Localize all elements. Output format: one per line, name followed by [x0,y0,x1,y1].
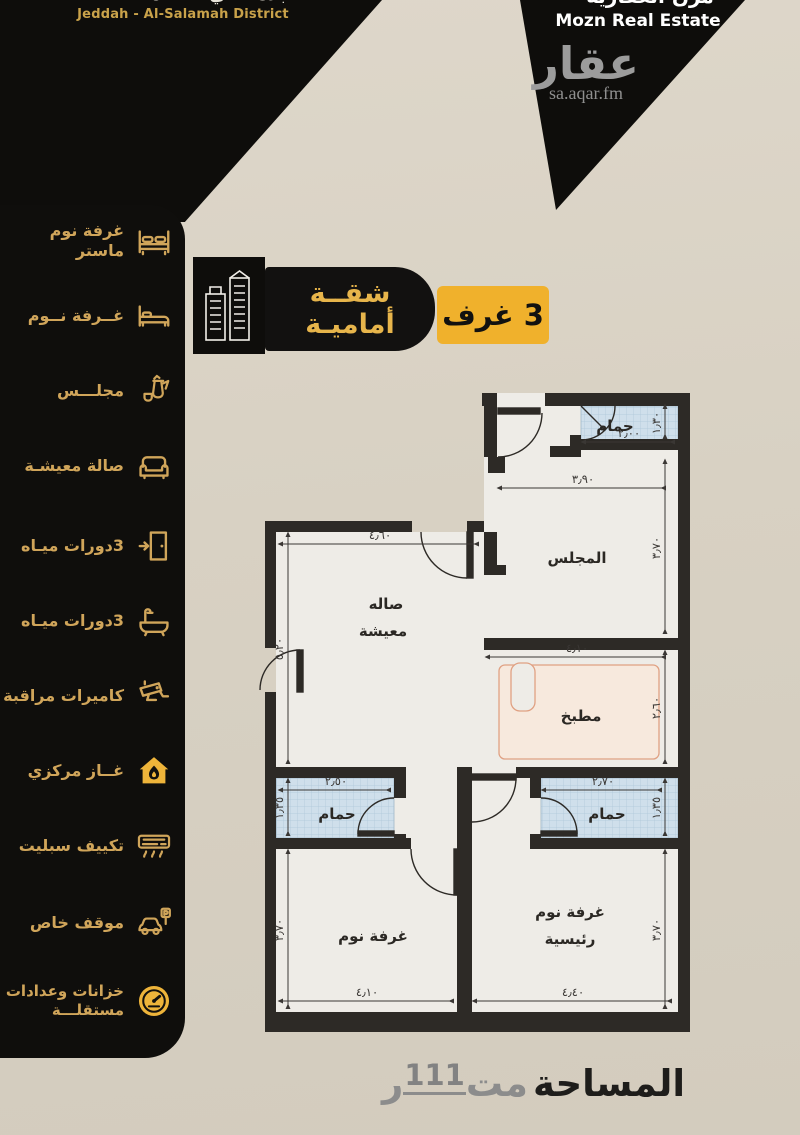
area-unit-start: مت [466,1062,528,1105]
location-english: Jeddah - Al-Salamah District [58,7,308,22]
room-master-1: غرفة نوم [535,903,605,921]
side-entrance-door [297,650,303,692]
brand-arabic-clipped: مزن العقارية [570,0,730,8]
features-sidebar: غرفة نوم ماستر غــرفة نــوم مجلـــس [0,205,185,1058]
rooms-count-badge: 3 غرف [437,286,549,344]
feature-cctv: كاميرات مراقبة [3,668,179,724]
feature-label: موقف خاص [30,913,124,933]
bath-right-door [541,831,577,836]
badge-title-line2: أماميـة [305,309,394,340]
feature-master-bedroom: غرفة نوم ماستر [3,213,179,269]
floor-plan-svg: ٢٫٠٠ ٣٫٩٠ ٤٫٦٠ ٤٫١٠ ٢٫٥٠ ٢٫٧٠ ٤٫١٠ ٤٫٤٠ … [243,383,713,1033]
bedroom-door [454,849,460,895]
living-door [467,532,473,578]
feature-central-gas: غــاز مركزي [3,743,179,799]
dim-living-h: ٥٫٢٠ [272,638,286,660]
area-unit-end: ر [382,1062,403,1105]
dim-bath-right-h: ١٫٣٥ [649,797,663,819]
feature-living-room: صالة معيشـة [3,438,179,494]
feature-label-line2: مستقلـــة [6,1001,124,1020]
feature-split-ac: تكييف سبليت [3,818,179,874]
room-majlis: المجلس [548,549,607,567]
feature-label: صالة معيشـة [24,456,124,476]
feature-label: غــرفة نــوم [28,306,124,326]
feature-private-parking: موقف خاص [3,895,179,951]
dim-bath-left-h: ١٫٣٥ [272,797,286,819]
room-kitchen: مطبخ [561,707,602,725]
plan-floors [276,393,678,1012]
feature-label: غــاز مركزي [28,761,124,781]
area-label: المساحة [533,1062,685,1105]
room-bath-right: حمام [588,805,626,823]
dim-bath-left-w: ٢٫٥٠ [325,774,347,788]
feature-label: غرفة نوم ماستر [3,221,124,261]
feature-two-entrances: 3دورات ميـاه [3,518,179,574]
master-bed-icon [133,220,175,262]
room-bedroom: غرفة نوم [338,927,408,945]
entrance-door [498,408,540,414]
area-value: 111 [403,1058,466,1095]
gas-house-icon [133,750,175,792]
top-left-black-band [0,0,382,222]
feature-label: 3دورات ميـاه [21,611,124,631]
meter-gauge-icon [133,980,175,1022]
room-bath-left: حمام [318,805,356,823]
room-living-2: معيشة [359,622,407,640]
feature-label: تكييف سبليت [19,836,124,856]
feature-label: 3دورات ميـاه [21,536,124,556]
hall-door [472,774,516,780]
dim-master-w: ٤٫٤٠ [562,985,584,999]
coffee-pot-icon [133,370,175,412]
cctv-camera-icon [133,675,175,717]
location-arabic-clipped: جدة - حي السلامة [95,0,335,5]
top-right-black-band [520,0,745,210]
dim-kitchen-w: ٤٫١٠ [566,641,588,655]
badge-title-line1: شقــة [310,278,391,309]
feature-independent-meters: خزانات وعدادات مستقلـــة [3,973,179,1029]
room-master-2: رئيسية [545,930,596,948]
feature-bedroom: غــرفة نــوم [3,288,179,344]
room-bath-top: حمام [596,417,634,435]
floor-plan: ٢٫٠٠ ٣٫٩٠ ٤٫٦٠ ٤٫١٠ ٢٫٥٠ ٢٫٧٠ ٤٫١٠ ٤٫٤٠ … [243,383,713,1033]
bed-icon [133,295,175,337]
door-icon [133,525,175,567]
ac-unit-icon [133,825,175,867]
parking-car-icon [133,902,175,944]
bath-left-door [358,831,394,836]
dim-living-w: ٤٫٦٠ [369,528,391,542]
area-total: المساحة مت111ر [382,1062,712,1105]
feature-3-bathrooms: 3دورات ميـاه 3دورات ميـاه 3دورات ميـاه 3… [3,593,179,649]
feature-label: خزانات وعدادات مستقلـــة [6,982,124,1020]
dim-kitchen-h: ٢٫٦٠ [649,697,663,719]
aqar-logo-text: عقار [520,40,652,87]
real-estate-poster: جدة - حي السلامة Jeddah - Al-Salamah Dis… [0,0,800,1135]
dim-majlis-h: ٣٫٧٠ [649,537,663,559]
feature-label-line1: خزانات وعدادات [6,982,124,1001]
developer-logo [193,257,265,354]
room-living-1: صاله [369,595,404,613]
feature-label: مجلـــس [57,381,124,401]
dim-bath-top-h: ١٫٣٠ [649,412,663,434]
feature-label: كاميرات مراقبة [3,686,124,706]
dim-master-h: ٣٫٧٠ [649,919,663,941]
dim-majlis-w: ٣٫٩٠ [572,472,594,486]
dim-bath-right-w: ٢٫٧٠ [592,774,614,788]
dim-bedroom-h: ٣٫٧٠ [272,919,286,941]
brand-english: Mozn Real Estate [548,11,728,31]
dim-bedroom-w: ٤٫١٠ [356,985,378,999]
sofa-icon [133,445,175,487]
feature-majlis: مجلـــس [3,363,179,419]
apartment-type-badge: شقــة أماميـة [265,267,435,351]
bathtub-icon [133,600,175,642]
aqar-watermark: عقار sa.aqar.fm [520,40,652,104]
